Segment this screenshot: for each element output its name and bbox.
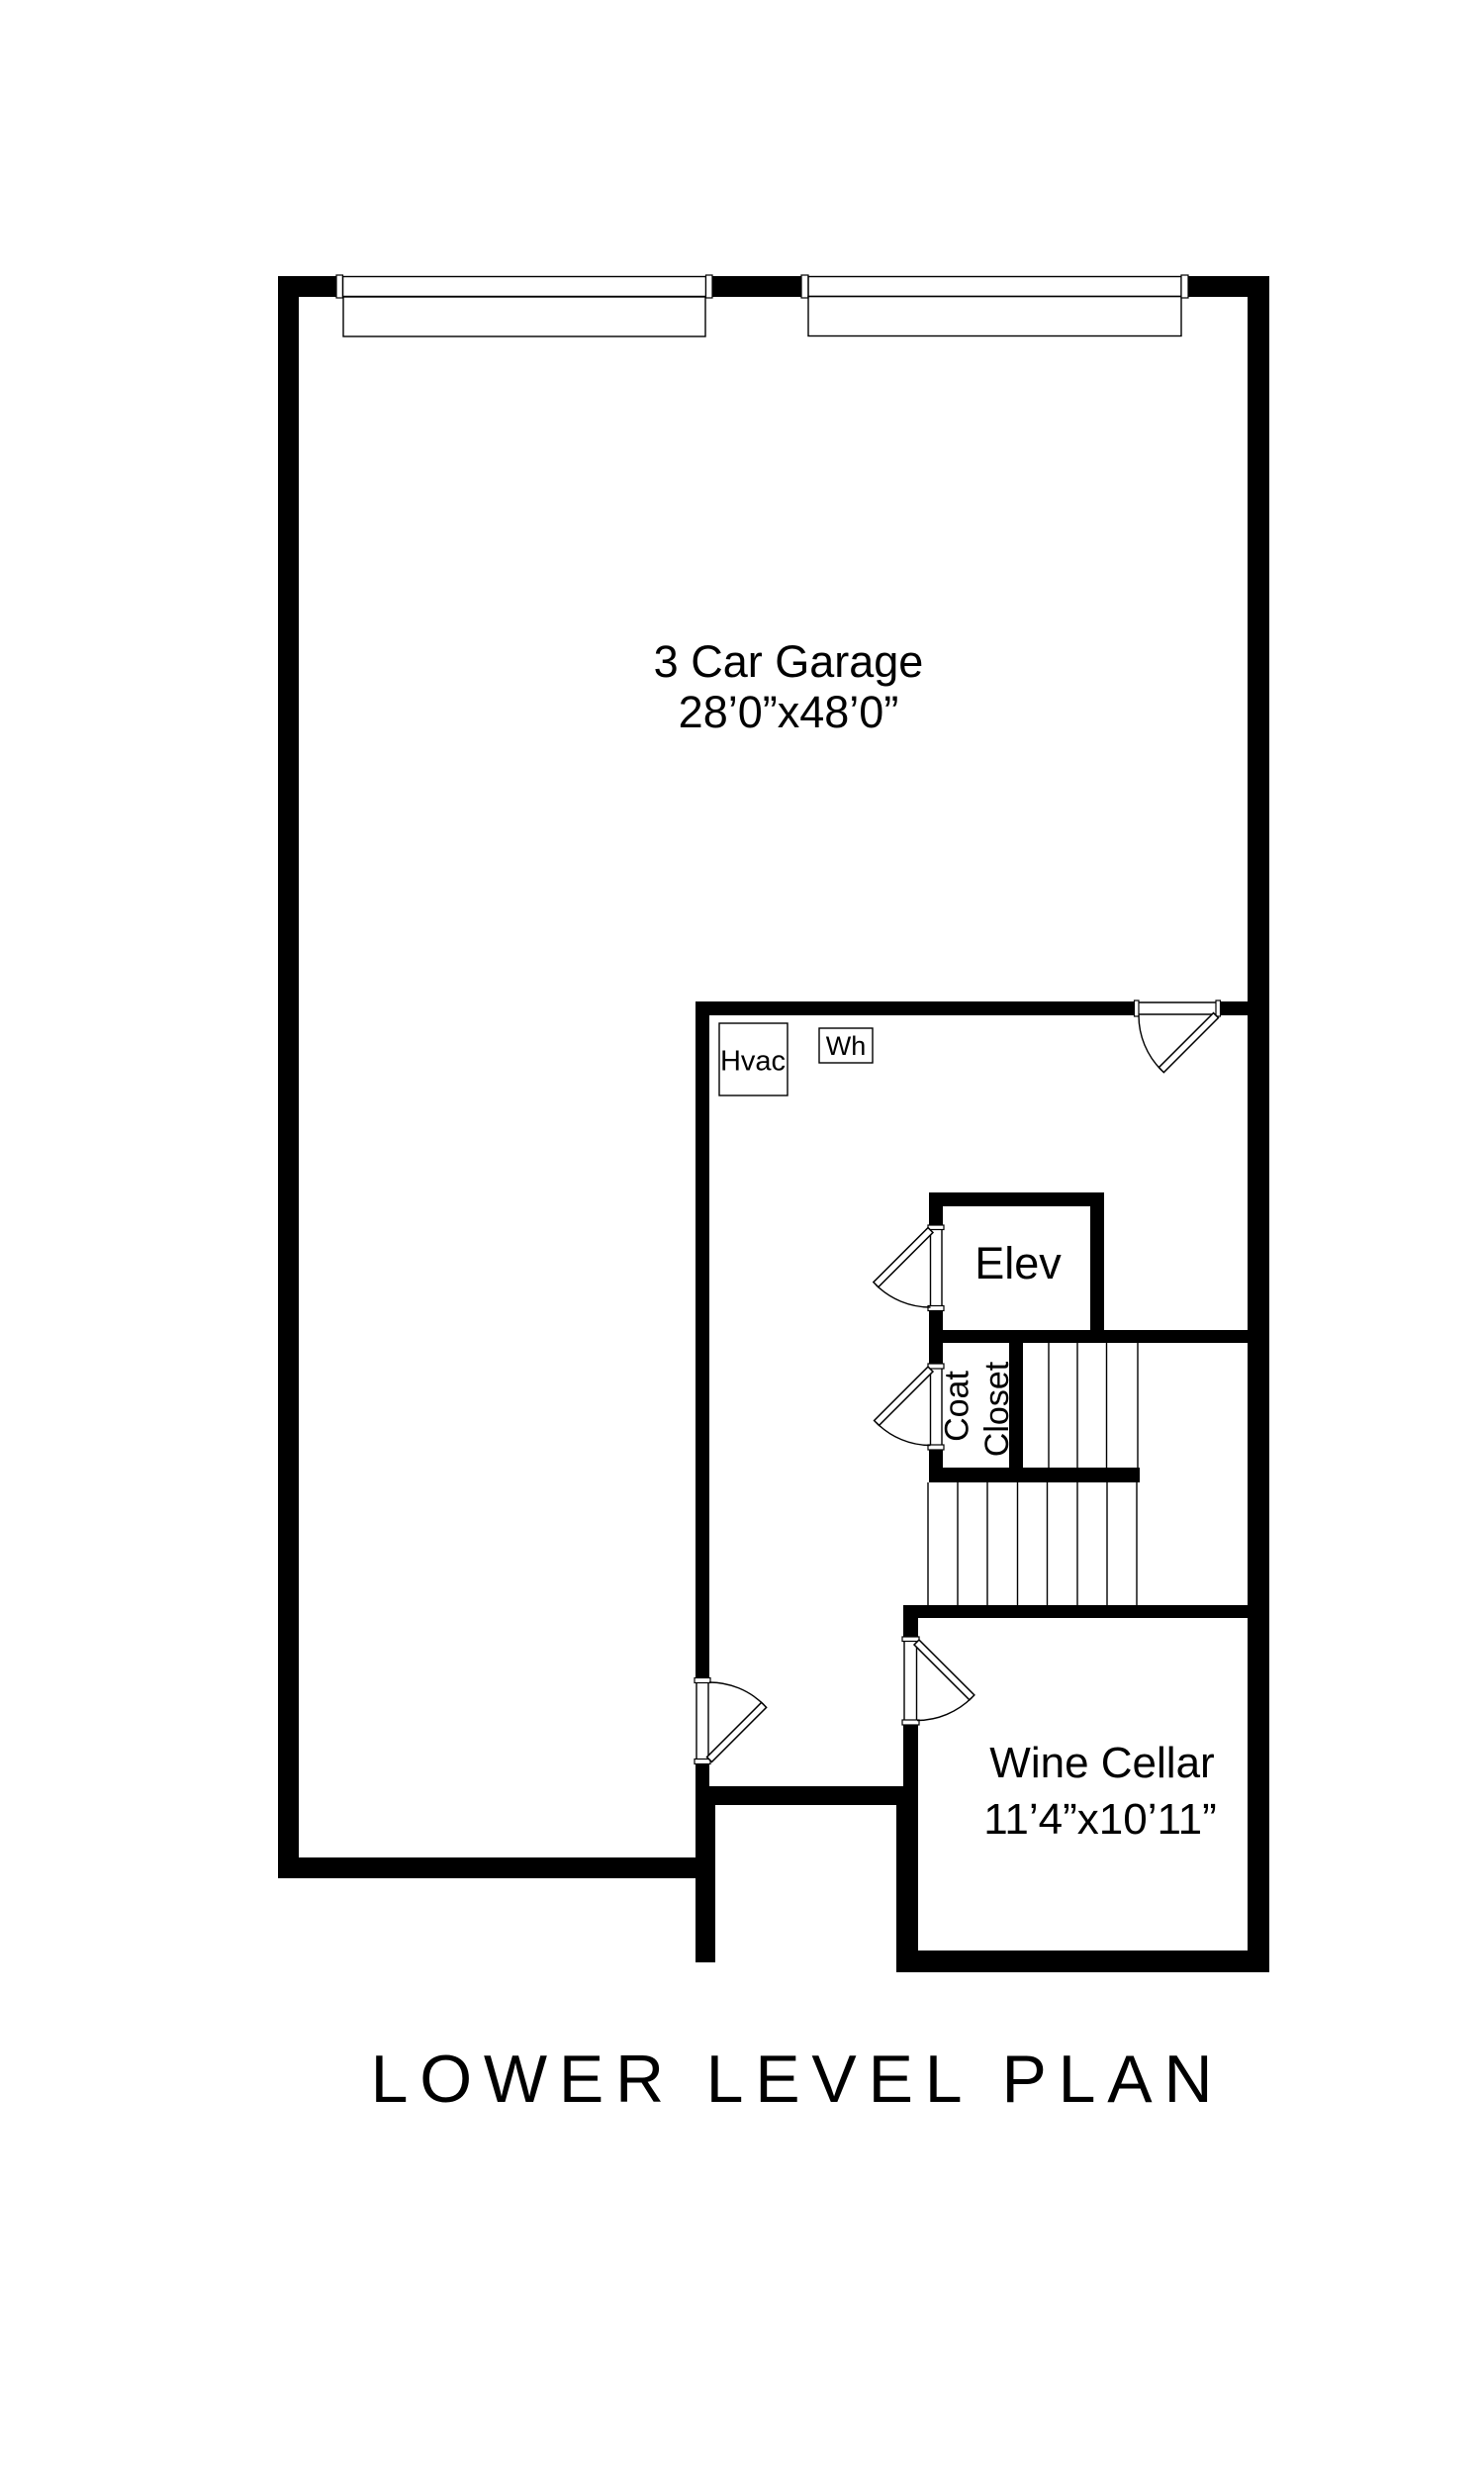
svg-text:3 Car Garage: 3 Car Garage [654, 636, 924, 687]
svg-text:Elev: Elev [974, 1238, 1062, 1288]
svg-text:Closet: Closet [978, 1361, 1016, 1457]
svg-text:LOWER LEVEL PLAN: LOWER LEVEL PLAN [371, 2042, 1225, 2117]
svg-text:Hvac: Hvac [720, 1046, 786, 1078]
svg-text:Wh: Wh [826, 1031, 867, 1061]
svg-text:11’4”x10’11”: 11’4”x10’11” [983, 1795, 1217, 1844]
svg-text:Coat: Coat [939, 1371, 976, 1442]
svg-text:28’0”x48’0”: 28’0”x48’0” [679, 687, 899, 737]
svg-text:Wine Cellar: Wine Cellar [989, 1739, 1214, 1787]
